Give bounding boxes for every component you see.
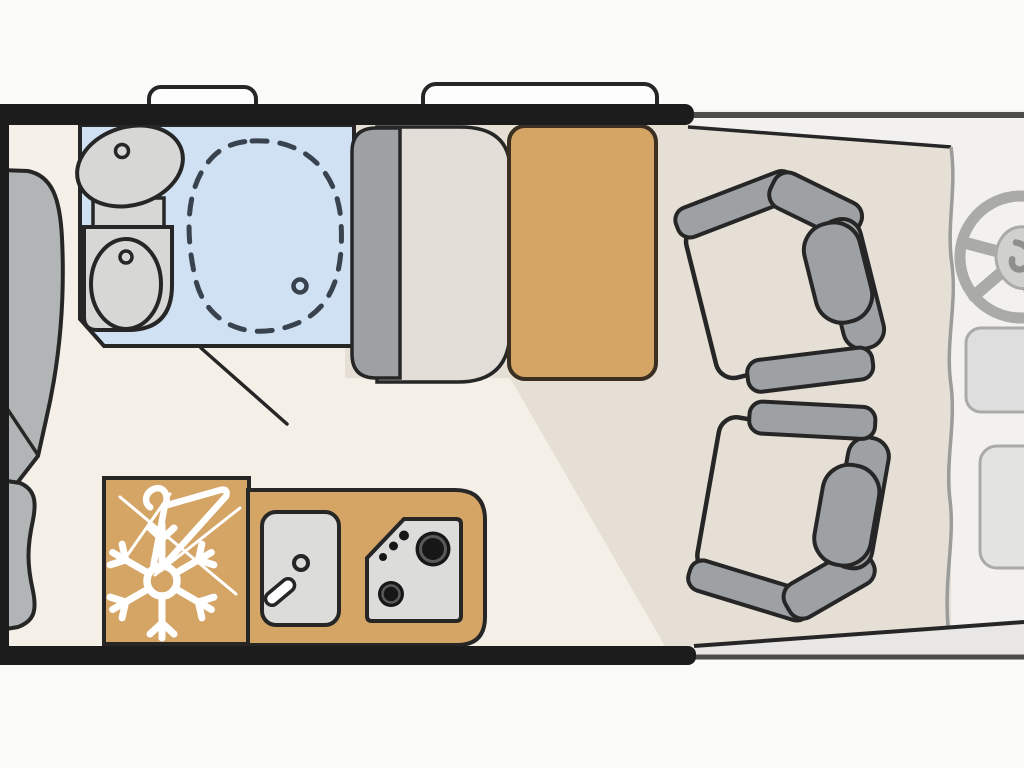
dinette-table [509,126,656,379]
hob-burner-large [416,532,451,567]
kitchen [248,490,485,645]
dashboard-console-lower [980,446,1024,568]
top-wall [0,104,694,125]
dashboard-console-upper [966,328,1024,412]
washbasin-tap-dot [116,145,129,158]
wardrobe-fridge-cabinet [104,453,249,644]
bench-backrest [352,128,400,378]
toilet-flush-dot [120,251,132,263]
left-wall [0,104,9,665]
bottom-wall [0,646,696,665]
sink-drain [294,556,308,570]
hob-burner-small [378,581,404,607]
floorplan [0,0,1024,768]
dinette [352,126,656,382]
floorplan-stage [0,0,1024,768]
bathroom [67,113,354,346]
